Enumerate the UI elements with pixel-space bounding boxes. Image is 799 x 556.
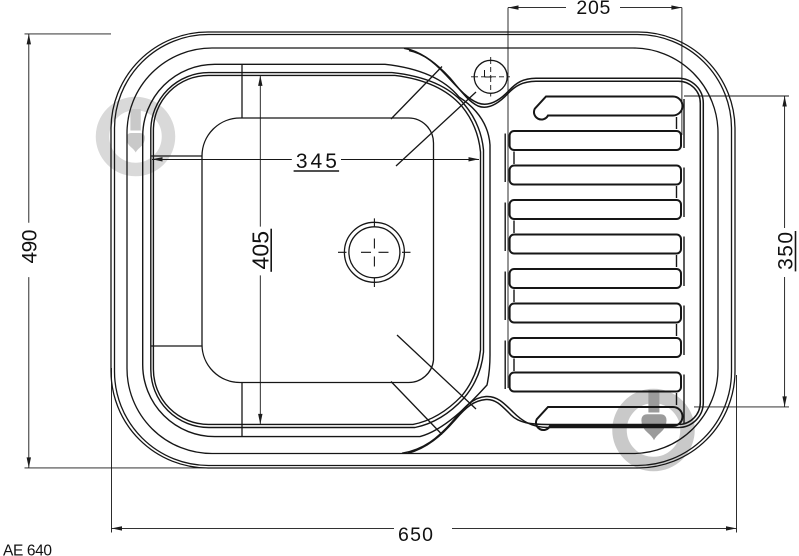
svg-text:350: 350: [774, 232, 797, 270]
svg-text:650: 650: [398, 524, 433, 546]
svg-text:345: 345: [296, 150, 337, 173]
svg-text:205: 205: [576, 0, 610, 19]
svg-text:490: 490: [18, 230, 41, 264]
svg-text:AE 640: AE 640: [3, 543, 52, 556]
svg-text:405: 405: [247, 231, 273, 270]
